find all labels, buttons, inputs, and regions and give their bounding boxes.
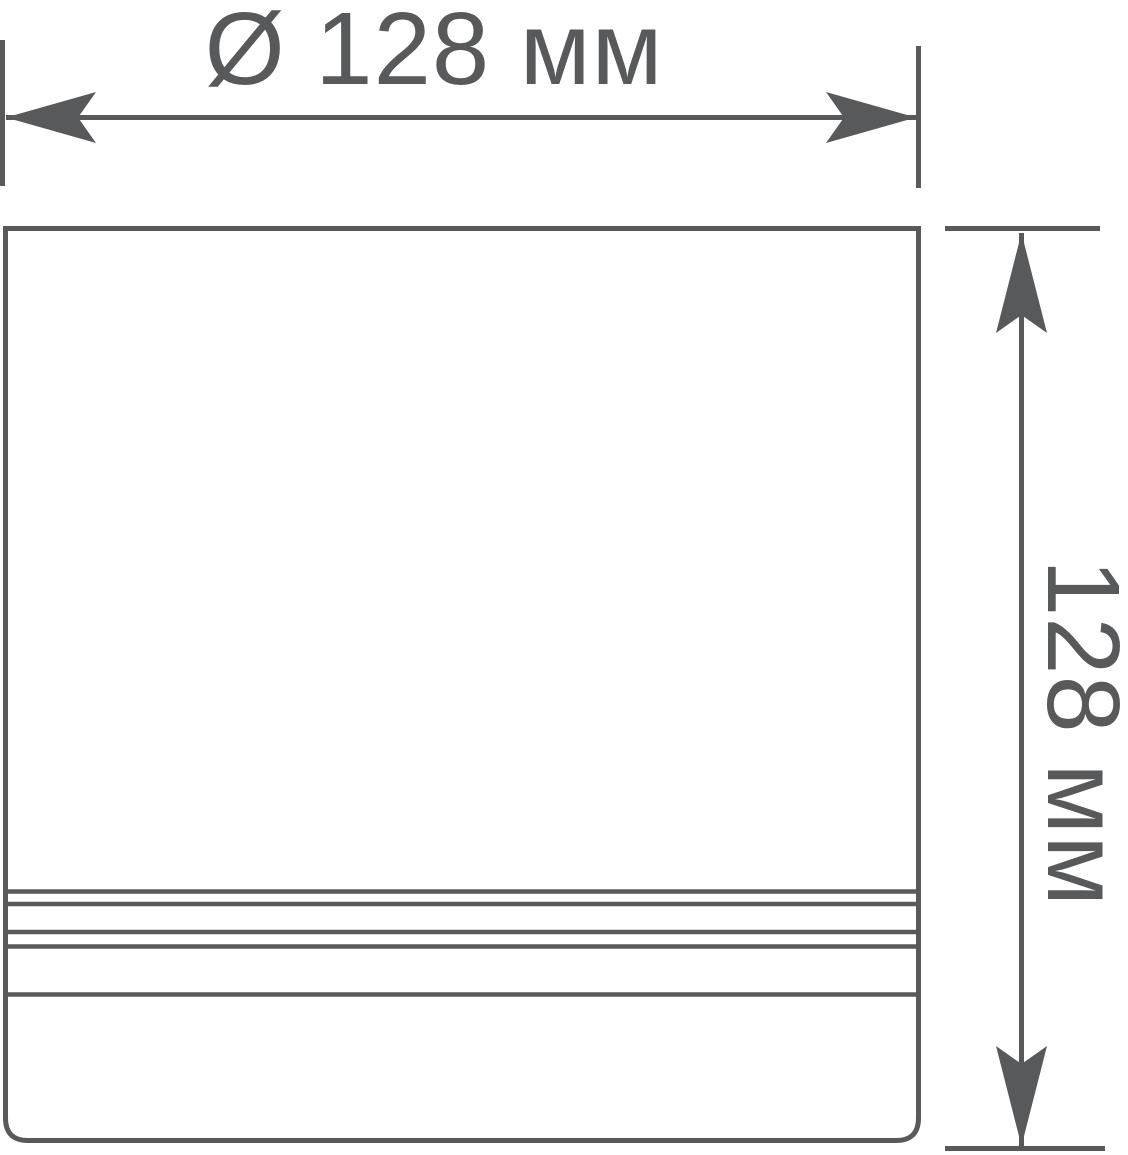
height-dimension-label: 128 мм (1026, 559, 1128, 907)
dimension-drawing-canvas: Ø 128 мм 128 мм (0, 0, 1128, 1155)
technical-drawing: Ø 128 мм 128 мм (0, 0, 1128, 1155)
height-dimension-group: 128 мм (945, 229, 1128, 1149)
diameter-dimension-label: Ø 128 мм (205, 0, 664, 106)
product-body-group (3, 229, 921, 1141)
diameter-dimension-group: Ø 128 мм (3, 0, 919, 188)
product-outline (6, 229, 919, 1141)
